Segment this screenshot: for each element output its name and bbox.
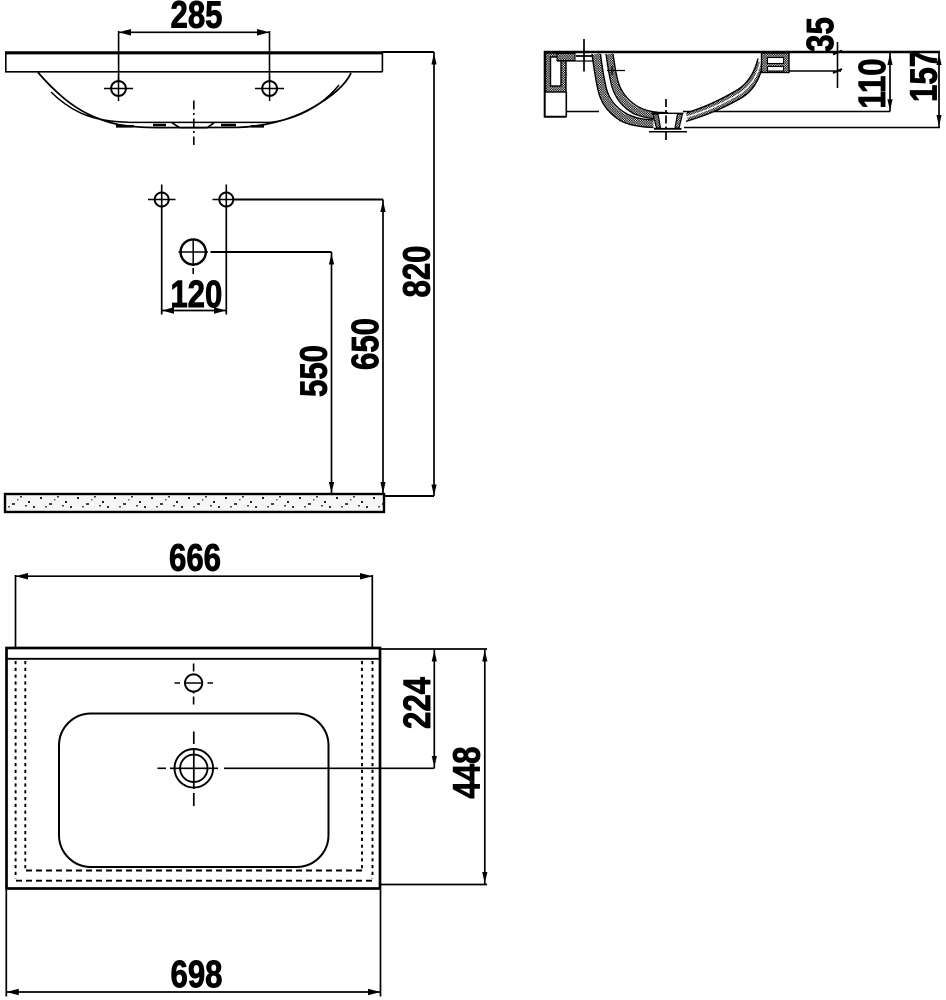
svg-text:35: 35 xyxy=(800,17,842,52)
svg-text:110: 110 xyxy=(852,58,894,108)
svg-text:550: 550 xyxy=(294,345,336,397)
svg-text:157: 157 xyxy=(904,50,946,102)
svg-text:285: 285 xyxy=(171,0,223,36)
svg-text:820: 820 xyxy=(397,246,439,298)
svg-text:650: 650 xyxy=(345,318,387,370)
svg-text:224: 224 xyxy=(397,676,439,729)
svg-text:698: 698 xyxy=(171,954,223,996)
svg-text:448: 448 xyxy=(447,747,489,799)
svg-text:666: 666 xyxy=(169,538,221,580)
